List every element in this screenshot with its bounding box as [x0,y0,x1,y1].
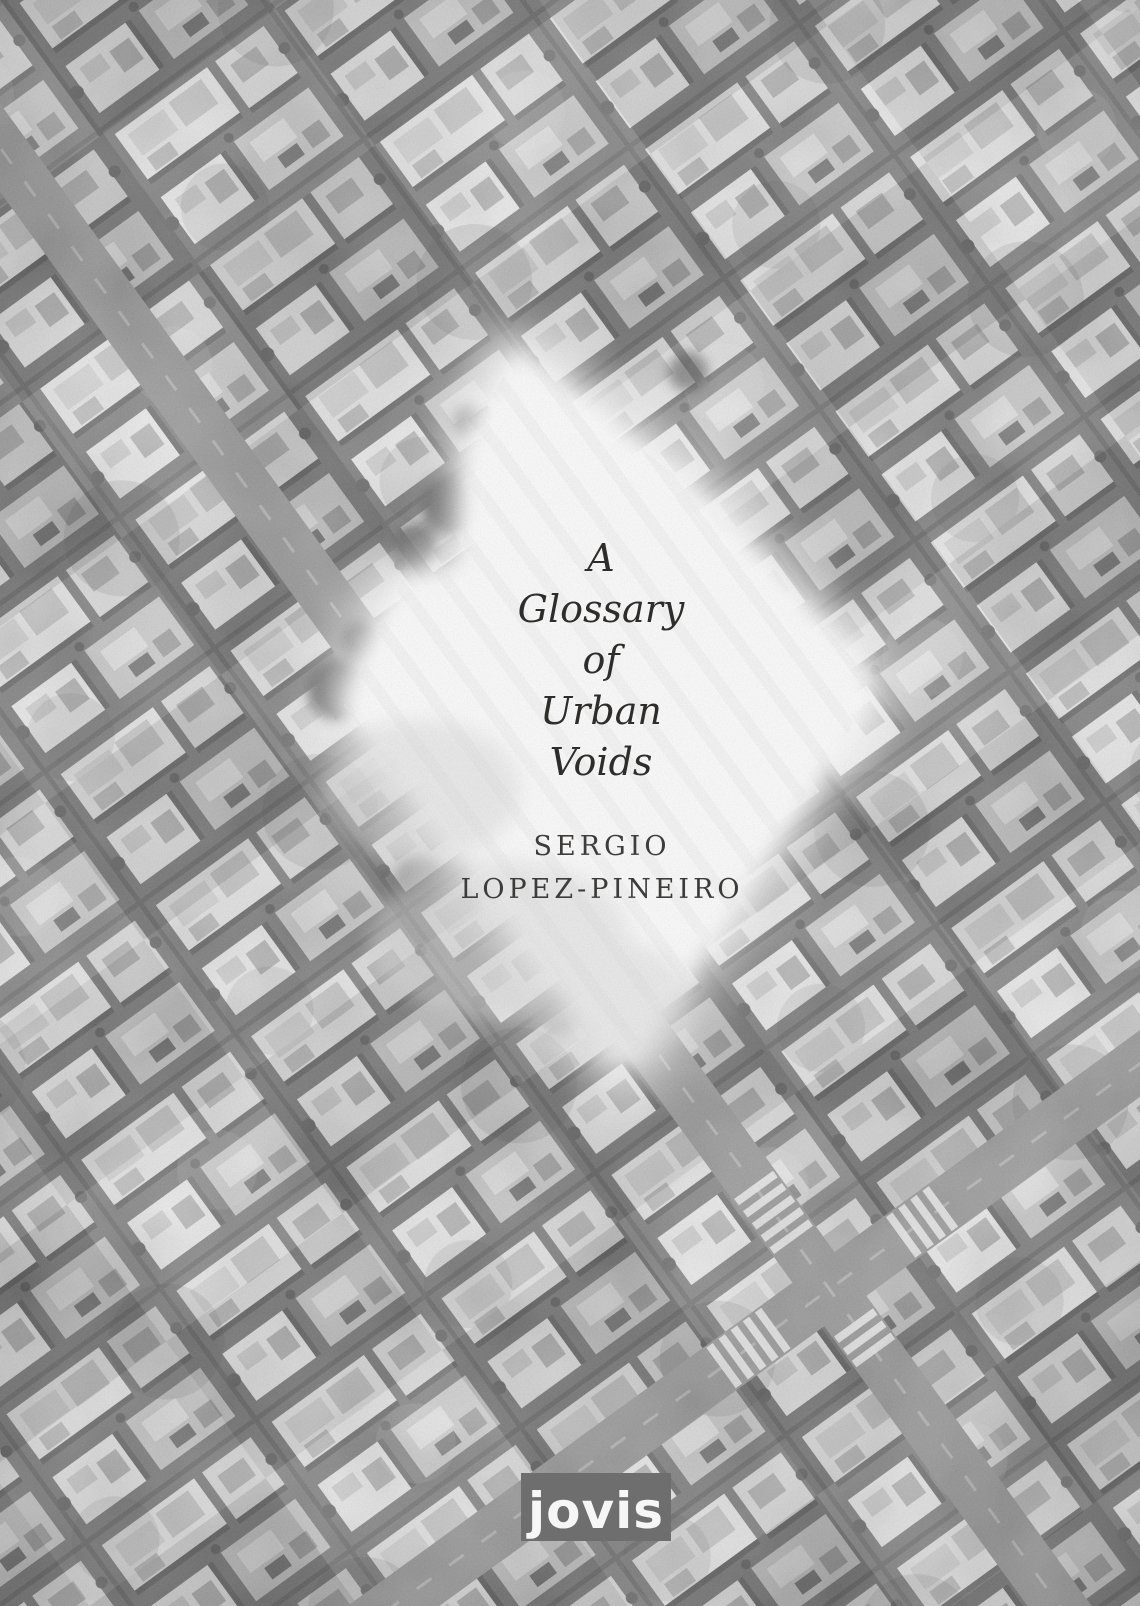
title-line: Voids [518,737,685,788]
book-title: A Glossary of Urban Voids [518,533,685,788]
aerial-photo-background [0,0,1140,1606]
book-cover: A Glossary of Urban Voids SERGIO LOPEZ-P… [0,0,1140,1606]
title-line: of [518,635,685,686]
title-line: A [518,533,685,584]
author-line: LOPEZ-PINEIRO [456,868,743,911]
author-line: SERGIO [456,825,743,868]
publisher-logo: jovis [521,1473,671,1541]
title-line: Urban [518,686,685,737]
book-author: SERGIO LOPEZ-PINEIRO [456,825,743,911]
title-line: Glossary [518,584,685,635]
publisher-logo-text: jovis [528,1479,664,1536]
